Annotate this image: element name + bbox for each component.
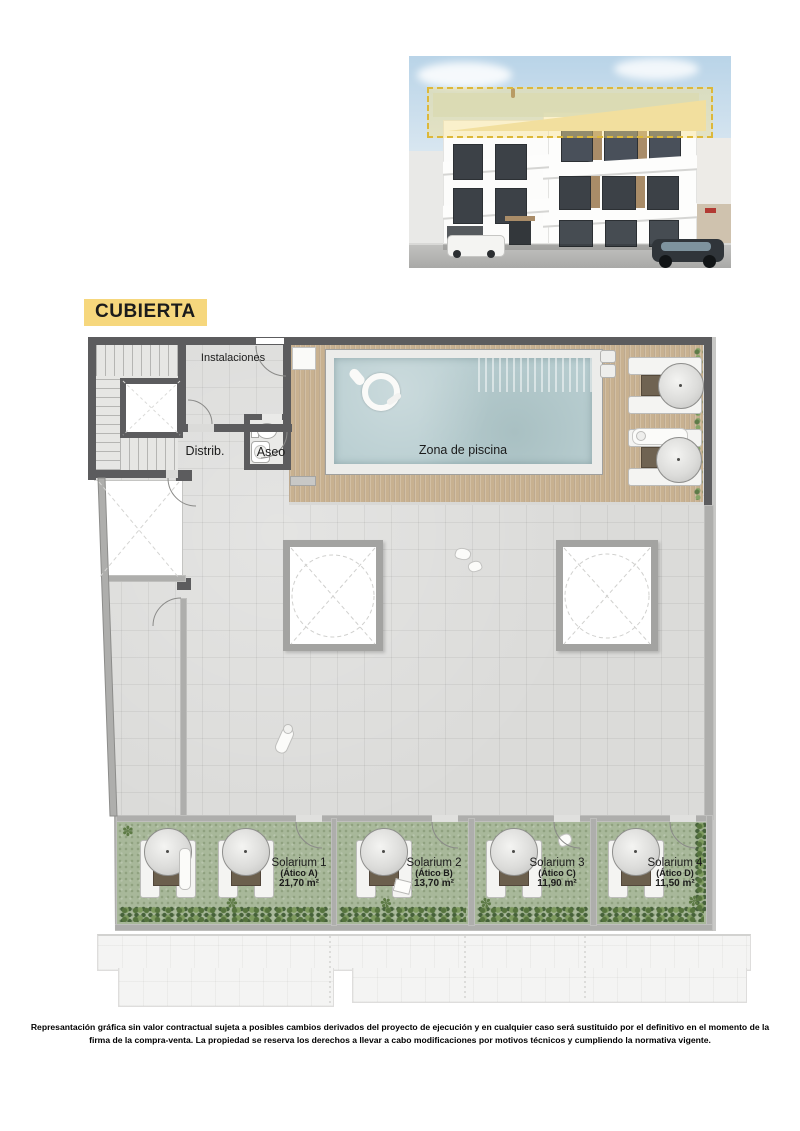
disclaimer-line-2: firma de la compra-venta. La propiedad s… — [0, 1035, 800, 1045]
hedge — [339, 906, 466, 922]
solarium-area: 11,50 m² — [641, 879, 709, 890]
door-opening — [166, 470, 178, 478]
room-label-installations: Instalaciones — [180, 353, 286, 365]
page: CUBIERTA — [0, 0, 800, 1131]
window — [559, 176, 591, 210]
solarium-area: 13,70 m² — [400, 879, 468, 890]
wall — [88, 337, 96, 480]
parasol-pole-icon — [166, 850, 169, 853]
plant-icon: ✽ — [122, 824, 134, 838]
room-label-toilet: Aseo — [253, 446, 289, 459]
door-opening — [554, 815, 580, 822]
solarium-front-wall — [110, 815, 713, 822]
partition-wall — [180, 598, 187, 818]
solarium-bottom-wall — [110, 924, 713, 931]
parasol-pole-icon — [512, 850, 515, 853]
cloud — [614, 58, 699, 80]
parasol-pole-icon — [382, 850, 385, 853]
person-head-icon — [636, 431, 646, 441]
stair-flight-top — [96, 345, 178, 376]
solarium-area: 21,70 m² — [265, 879, 333, 890]
wood-panel — [636, 176, 645, 208]
car-wheel-icon — [453, 250, 461, 258]
window — [559, 220, 593, 247]
wall-stub — [176, 470, 192, 481]
ghost-terrace-band — [97, 934, 751, 971]
door-opening — [188, 424, 214, 432]
deck-equipment-box — [292, 347, 316, 370]
cloud — [417, 62, 512, 88]
solarium-partition-wall — [468, 818, 475, 926]
building-render — [409, 56, 731, 268]
wall — [244, 464, 291, 470]
skylight — [556, 540, 658, 651]
hedge — [599, 906, 704, 922]
window — [453, 144, 483, 180]
pool-float-ring-icon — [362, 373, 400, 411]
solarium-partition-wall — [590, 818, 597, 926]
outdoor-shower-icon — [600, 364, 616, 378]
solarium-3-label: Solarium 3 (Ático C) 11,90 m² — [523, 857, 591, 889]
parasol-pole-icon — [244, 850, 247, 853]
page-title: CUBIERTA — [84, 299, 207, 326]
door-opening — [432, 815, 458, 822]
page-title-text: CUBIERTA — [95, 301, 196, 322]
hedge — [119, 906, 329, 922]
outdoor-shower-icon — [600, 350, 616, 363]
parasol-pole-icon — [679, 384, 682, 387]
ghost-terrace-segment — [352, 968, 747, 1003]
room-label-distributor: Distrib. — [176, 445, 234, 458]
solarium-2-label: Solarium 2 (Ático B) 13,70 m² — [400, 857, 468, 889]
stair-flight-bottom — [120, 438, 178, 470]
parasol-pole-icon — [634, 850, 637, 853]
window — [605, 220, 637, 247]
deck-edge — [289, 502, 703, 505]
window — [495, 144, 527, 180]
door-opening — [296, 815, 322, 822]
car-wheel-icon — [659, 255, 672, 268]
wall — [244, 414, 250, 470]
roof-highlight-box — [427, 87, 713, 138]
pool-label: Zona de piscina — [388, 444, 538, 457]
car-window — [661, 242, 711, 251]
parasol-pole-icon — [677, 458, 680, 461]
car-wheel-icon — [703, 255, 716, 268]
wall — [178, 337, 186, 432]
solarium-1-label: Solarium 1 (Ático A) 21,70 m² — [265, 857, 333, 889]
wall — [704, 337, 712, 508]
deck-grate — [290, 476, 316, 486]
patio-void — [97, 480, 183, 582]
window — [602, 176, 636, 210]
person-standing-icon — [179, 848, 191, 890]
solarium-4-label: Solarium 4 (Ático D) 11,50 m² — [641, 857, 709, 889]
ghost-terrace-segment — [118, 968, 334, 1007]
entrance-door — [509, 221, 531, 245]
pool-steps — [478, 358, 592, 392]
elevator-shaft — [120, 378, 183, 438]
solarium-left-wall — [110, 815, 117, 931]
wood-panel — [591, 176, 600, 208]
skylight — [283, 540, 383, 651]
door-opening — [262, 414, 282, 420]
neighbor-building-left — [409, 151, 447, 243]
parapet-wall — [98, 575, 186, 582]
disclaimer-line-1: Represantación gráfica sin valor contrac… — [0, 1022, 800, 1032]
door-opening — [256, 338, 284, 344]
window — [647, 176, 679, 210]
plant-icon: ✽ — [687, 893, 701, 909]
solarium-area: 11,90 m² — [523, 879, 591, 890]
car-wheel-icon — [487, 250, 495, 258]
person-head-icon — [283, 724, 293, 734]
parapet-wall — [704, 505, 714, 820]
window — [453, 188, 483, 224]
door-opening — [670, 815, 696, 822]
stair-flight-left — [96, 376, 120, 470]
storefront-sign — [705, 208, 716, 213]
hedge — [477, 906, 588, 922]
